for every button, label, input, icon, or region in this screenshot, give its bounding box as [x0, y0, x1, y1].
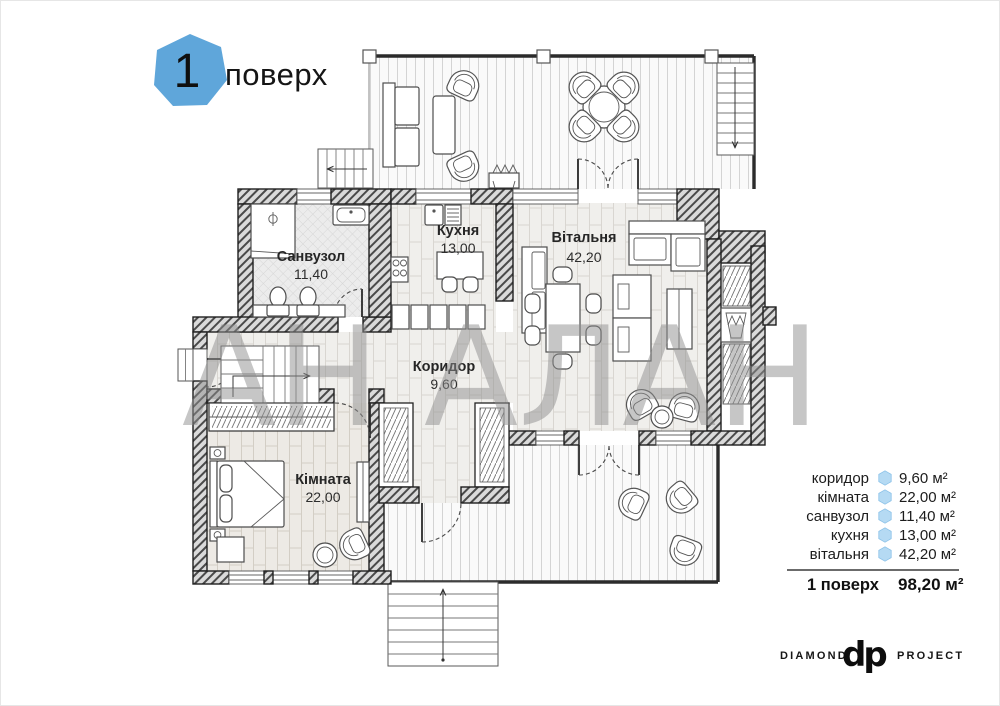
terrace-post	[363, 50, 376, 63]
legend-row-value: 13,00 м²	[899, 527, 956, 544]
legend-row-label: кухня	[831, 527, 869, 544]
legend-row-value: 11,40 м²	[899, 508, 955, 525]
kitchen-table	[437, 252, 483, 279]
legend-row-value: 22,00 м²	[899, 489, 956, 506]
legend-row: кімната 22,00 м²	[817, 489, 956, 506]
bedroom-area: 22,00	[305, 489, 340, 505]
top-terrace	[363, 50, 754, 189]
terrace-post	[705, 50, 718, 63]
floor-label: поверх	[225, 57, 328, 92]
logo-left-text: DIAMOND	[780, 650, 848, 662]
floor-plan-page: Санвузол 11,40 Кухня 13,00 Вітальня 42,2…	[0, 0, 1000, 706]
legend-row-label: вітальня	[810, 546, 869, 563]
floor-number: 1	[174, 45, 201, 98]
legend-row: коридор 9,60 м²	[812, 470, 948, 487]
stove	[391, 257, 408, 282]
kitchen-chair	[463, 277, 478, 292]
kitchen-area: 13,00	[440, 240, 475, 256]
legend-row-value: 42,20 м²	[899, 546, 956, 563]
legend-row: кухня 13,00 м²	[831, 527, 956, 544]
legend-row: вітальня 42,20 м²	[810, 546, 956, 563]
kitchen-label: Кухня	[437, 223, 479, 239]
logo-monogram-icon: dp	[842, 635, 886, 675]
bathroom-label: Санвузол	[277, 249, 345, 265]
legend-row-label: санвузол	[806, 508, 869, 525]
corner-sofa	[629, 221, 705, 271]
living-label: Вітальня	[551, 230, 616, 246]
legend-row-label: коридор	[812, 470, 869, 487]
logo-right-text: PROJECT	[897, 650, 964, 662]
terrace-sofa	[383, 83, 419, 167]
exterior-stair-top	[318, 149, 373, 188]
legend-total-value: 98,20 м²	[898, 575, 964, 594]
terrace-coffee-table	[433, 96, 455, 154]
living-area: 42,20	[566, 249, 601, 265]
legend-row-value: 9,60 м²	[899, 470, 948, 487]
floor-plan-canvas: Санвузол 11,40 Кухня 13,00 Вітальня 42,2…	[1, 1, 1000, 706]
brand-logo: DIAMOND dp PROJECT	[780, 635, 964, 675]
entrance-steps	[388, 582, 498, 666]
legend-total-label: 1 поверх	[807, 576, 880, 594]
legend: коридор 9,60 м² кімната 22,00 м² санвузо…	[787, 470, 964, 594]
page-title: 1 поверх	[154, 34, 328, 106]
legend-row-label: кімната	[817, 489, 869, 506]
watermark-text: АН АЛАН	[182, 297, 820, 458]
bedroom-label: Кімната	[295, 472, 352, 488]
kitchen-chair	[442, 277, 457, 292]
bathroom-area: 11,40	[294, 266, 328, 282]
terrace-post	[537, 50, 550, 63]
legend-row: санвузол 11,40 м²	[806, 508, 955, 525]
terrace-stairs-right	[717, 63, 754, 155]
kitchen-sink	[425, 205, 461, 225]
bedroom-desk	[217, 537, 244, 562]
bed	[210, 461, 284, 527]
